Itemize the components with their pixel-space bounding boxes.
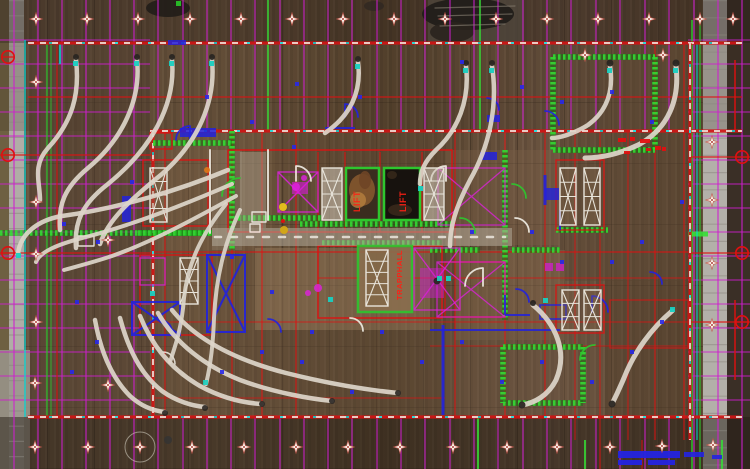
- shaft-label: LIFT: [352, 191, 362, 212]
- shaft-label: LIFT: [398, 191, 408, 212]
- shaft-label: TRAPPHALL: [395, 250, 404, 300]
- cad-overlay-svg: LIFTLIFTTRAPPHALL: [0, 0, 750, 469]
- construction-deck-orthophoto: LIFTLIFTTRAPPHALL: [0, 0, 750, 469]
